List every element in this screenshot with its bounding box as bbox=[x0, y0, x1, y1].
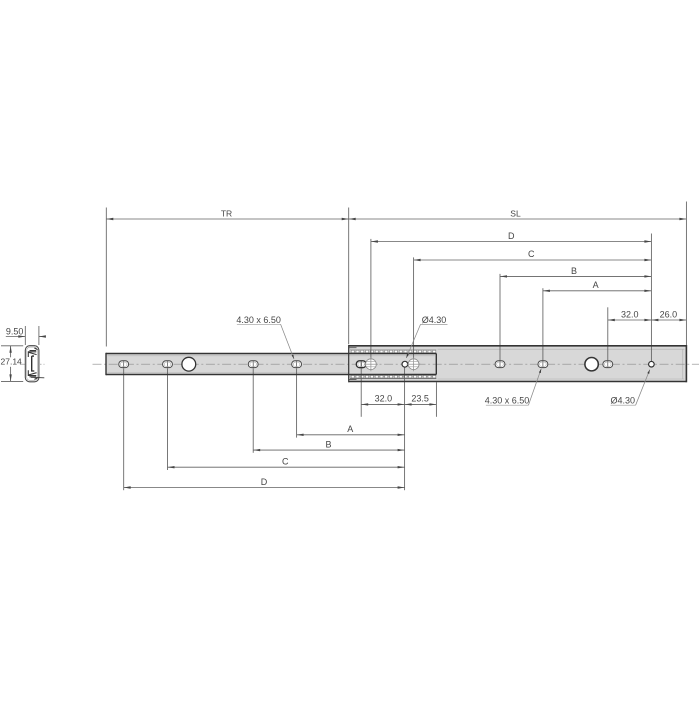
svg-text:27.14: 27.14 bbox=[1, 356, 23, 366]
svg-text:C: C bbox=[282, 457, 289, 467]
svg-text:SL: SL bbox=[510, 208, 521, 218]
svg-text:B: B bbox=[571, 266, 577, 276]
svg-text:26.0: 26.0 bbox=[660, 309, 678, 319]
svg-text:Ø4.30: Ø4.30 bbox=[611, 395, 636, 405]
svg-text:C: C bbox=[528, 249, 535, 259]
svg-text:9.50: 9.50 bbox=[6, 326, 24, 336]
svg-text:TR: TR bbox=[221, 208, 232, 218]
svg-text:4.30 x 6.50: 4.30 x 6.50 bbox=[485, 395, 530, 405]
svg-text:A: A bbox=[347, 424, 353, 434]
svg-text:D: D bbox=[261, 477, 268, 487]
svg-text:Ø4.30: Ø4.30 bbox=[422, 315, 447, 325]
svg-text:4.30 x 6.50: 4.30 x 6.50 bbox=[236, 315, 281, 325]
svg-text:32.0: 32.0 bbox=[375, 394, 393, 404]
svg-text:B: B bbox=[325, 439, 331, 449]
svg-text:A: A bbox=[593, 280, 599, 290]
svg-text:32.0: 32.0 bbox=[621, 309, 639, 319]
svg-text:23.5: 23.5 bbox=[411, 394, 429, 404]
svg-text:D: D bbox=[508, 231, 515, 241]
